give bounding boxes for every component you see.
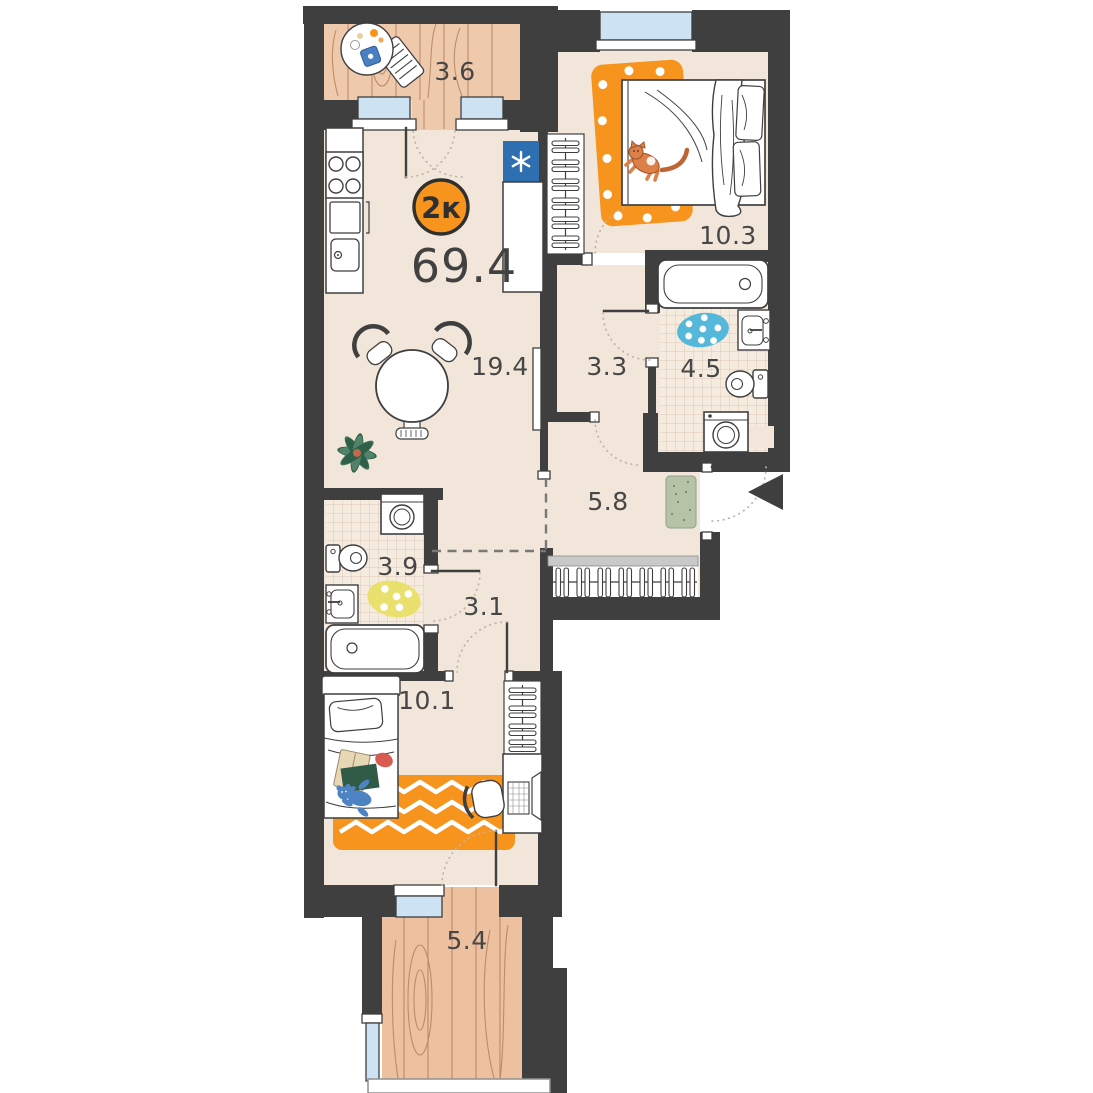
single-bed-icon [322, 676, 400, 818]
room-label-bathroom-guest: 3.9 [377, 552, 418, 581]
toilet-icon [726, 370, 768, 398]
balcony-table-icon [341, 23, 393, 75]
bedroom-kids-window-icon [394, 885, 444, 917]
bathtub-icon [658, 260, 768, 308]
wardrobe-icon [547, 134, 584, 254]
balcony-top-window-left-icon [352, 97, 416, 130]
room-label-balcony-top: 3.6 [434, 57, 475, 86]
room-label-corridor: 3.1 [463, 592, 504, 621]
balcony-bottom-window-icon [362, 1014, 382, 1081]
floorplan-drawing: 3.6 10.3 19.4 3.3 4.5 5.8 3.9 3.1 10.1 5… [0, 0, 1093, 1093]
room-label-bedroom-kids: 10.1 [398, 686, 456, 715]
entrance-arrow-icon [748, 474, 783, 510]
fridge-icon [503, 141, 539, 182]
apartment-type-label: 2к [421, 191, 461, 225]
toilet-icon [326, 545, 367, 572]
bathroom-sink-icon [326, 585, 358, 623]
door-mat-icon [666, 476, 696, 528]
bathroom-sink-icon [738, 310, 770, 350]
bedroom-main-window-icon [596, 12, 696, 50]
apartment-type-badge: 2к [414, 180, 468, 234]
wardrobe-icon [504, 681, 541, 754]
room-label-balcony-bottom: 5.4 [446, 926, 487, 955]
balcony-bottom-glazing-icon [368, 1079, 550, 1093]
room-label-kitchen-living: 19.4 [471, 352, 529, 381]
bathtub-icon [326, 625, 424, 673]
room-label-entry-hall: 5.8 [587, 487, 628, 516]
double-bed-icon [622, 80, 765, 216]
stove-icon [326, 152, 363, 198]
washing-machine-icon [381, 494, 424, 534]
sliding-door-leaf-icon [533, 348, 541, 430]
total-area-value: 69.4 [411, 239, 517, 293]
room-label-hallway: 3.3 [586, 352, 627, 381]
desk-icon [503, 754, 542, 833]
washing-machine-icon [704, 412, 748, 452]
floorplan-page: 3.6 10.3 19.4 3.3 4.5 5.8 3.9 3.1 10.1 5… [0, 0, 1093, 1093]
room-label-bathroom-main: 4.5 [680, 354, 721, 383]
wall-niche [746, 426, 774, 448]
balcony-top-window-right-icon [456, 97, 508, 130]
room-label-bedroom-main: 10.3 [699, 221, 757, 250]
